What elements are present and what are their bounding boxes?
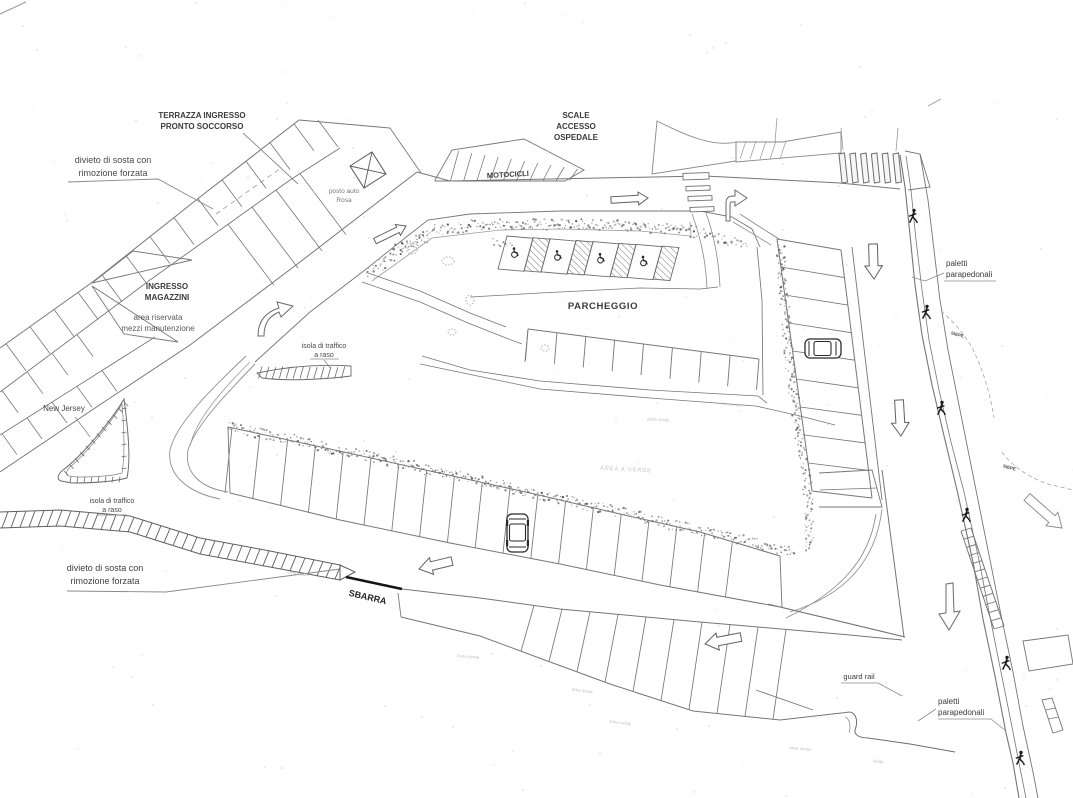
svg-text:zona verde: zona verde xyxy=(457,653,480,660)
svg-text:paletti: paletti xyxy=(946,259,968,268)
svg-text:SIEPE: SIEPE xyxy=(950,330,964,338)
svg-text:SIEPE: SIEPE xyxy=(1002,463,1016,471)
svg-text:velo sosta: velo sosta xyxy=(288,570,309,578)
svg-text:limite: limite xyxy=(873,759,884,765)
svg-text:PRONTO SOCCORSO: PRONTO SOCCORSO xyxy=(161,122,244,131)
svg-text:rimozione forzata: rimozione forzata xyxy=(70,576,139,586)
svg-text:a raso: a raso xyxy=(102,507,122,514)
svg-text:isola di traffico: isola di traffico xyxy=(90,498,135,505)
svg-text:linea raso: linea raso xyxy=(723,401,743,408)
svg-text:parapedonali: parapedonali xyxy=(938,708,984,717)
svg-text:mezzi manutenzione: mezzi manutenzione xyxy=(121,324,195,333)
svg-text:posto auto: posto auto xyxy=(329,188,360,195)
svg-text:rimozione forzata: rimozione forzata xyxy=(78,168,147,178)
svg-text:AREA A VERDE: AREA A VERDE xyxy=(600,466,652,475)
svg-text:parapedonali: parapedonali xyxy=(946,270,992,279)
svg-text:New Jersey: New Jersey xyxy=(43,404,85,413)
svg-text:divieto di sosta con: divieto di sosta con xyxy=(67,563,144,573)
svg-text:zona verde: zona verde xyxy=(609,718,632,726)
svg-text:PARCHEGGIO: PARCHEGGIO xyxy=(568,301,638,312)
svg-text:SBARRA: SBARRA xyxy=(348,588,388,607)
svg-text:ACCESSO: ACCESSO xyxy=(556,122,596,131)
svg-text:isola di traffico: isola di traffico xyxy=(302,343,347,350)
svg-text:guard rail: guard rail xyxy=(843,672,875,681)
svg-text:a raso: a raso xyxy=(314,352,334,359)
svg-text:INGRESSO: INGRESSO xyxy=(146,282,188,291)
svg-text:paletti: paletti xyxy=(938,697,960,706)
svg-text:OSPEDALE: OSPEDALE xyxy=(554,133,599,142)
svg-text:area riservata: area riservata xyxy=(134,313,183,322)
svg-text:area verde: area verde xyxy=(789,745,811,752)
svg-text:zona verde: zona verde xyxy=(647,416,670,422)
svg-text:area sosta: area sosta xyxy=(571,687,593,695)
svg-text:divieto di sosta con: divieto di sosta con xyxy=(75,155,152,165)
svg-text:TERRAZZA INGRESSO: TERRAZZA INGRESSO xyxy=(158,111,245,120)
svg-text:SCALE: SCALE xyxy=(562,111,590,120)
svg-text:MAGAZZINI: MAGAZZINI xyxy=(145,293,189,302)
svg-text:Rosa: Rosa xyxy=(336,197,352,204)
svg-text:MOTOCICLI: MOTOCICLI xyxy=(487,169,529,180)
